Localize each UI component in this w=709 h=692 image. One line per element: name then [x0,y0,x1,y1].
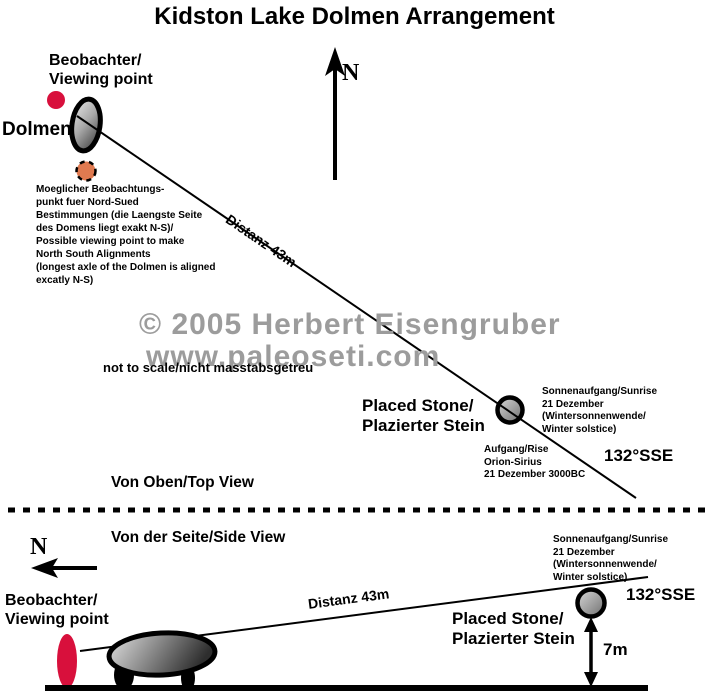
north-label-side: N [30,534,47,561]
sight-line-top [77,116,636,498]
side-view-label: Von der Seite/Side View [111,529,285,547]
dolmen-label: Dolmen [2,119,72,141]
top-view-label: Von Oben/Top View [111,474,254,492]
scale-note: not to scale/nicht masstabsgetreu [103,360,313,375]
azimuth-label-top: 132°SSE [604,446,673,466]
orion-rise-note: Aufgang/Rise Orion-Sirius 21 Dezember 30… [484,444,585,482]
placed-stone-label-side: Placed Stone/ Plazierter Stein [452,609,575,649]
dolmen-ellipse-top [69,97,104,152]
alt-viewpoint-note: Moeglicher Beobachtungs- punkt fuer Nord… [36,183,215,287]
watermark-copyright: © 2005 Herbert Eisengruber [139,308,561,342]
placed-stone-label-top: Placed Stone/ Plazierter Stein [362,396,485,436]
observer-stone-side [57,634,77,688]
height-arrow-head-bottom [584,672,598,687]
north-label-top: N [342,60,359,87]
sunrise-note-side: Sonnenaufgang/Sunrise 21 Dezember (Winte… [553,534,709,584]
dolmen-arrangement-diagram: Kidston Lake Dolmen Arrangement © 2005 H… [0,0,709,692]
observer-dot-top [47,91,65,109]
observer-label-top: Beobachter/ Viewing point [49,51,153,89]
stone-height-label: 7m [603,640,628,660]
height-arrow-head-top [584,617,598,632]
observer-label-side: Beobachter/ Viewing point [5,591,109,629]
dolmen-capstone-side [108,630,216,677]
azimuth-label-side: 132°SSE [626,585,695,605]
placed-stone-side [578,590,605,617]
page-title: Kidston Lake Dolmen Arrangement [0,3,709,31]
sunrise-note-top: Sonnenaufgang/Sunrise 21 Dezember (Winte… [542,386,709,436]
alt-viewpoint-dot [77,162,96,181]
